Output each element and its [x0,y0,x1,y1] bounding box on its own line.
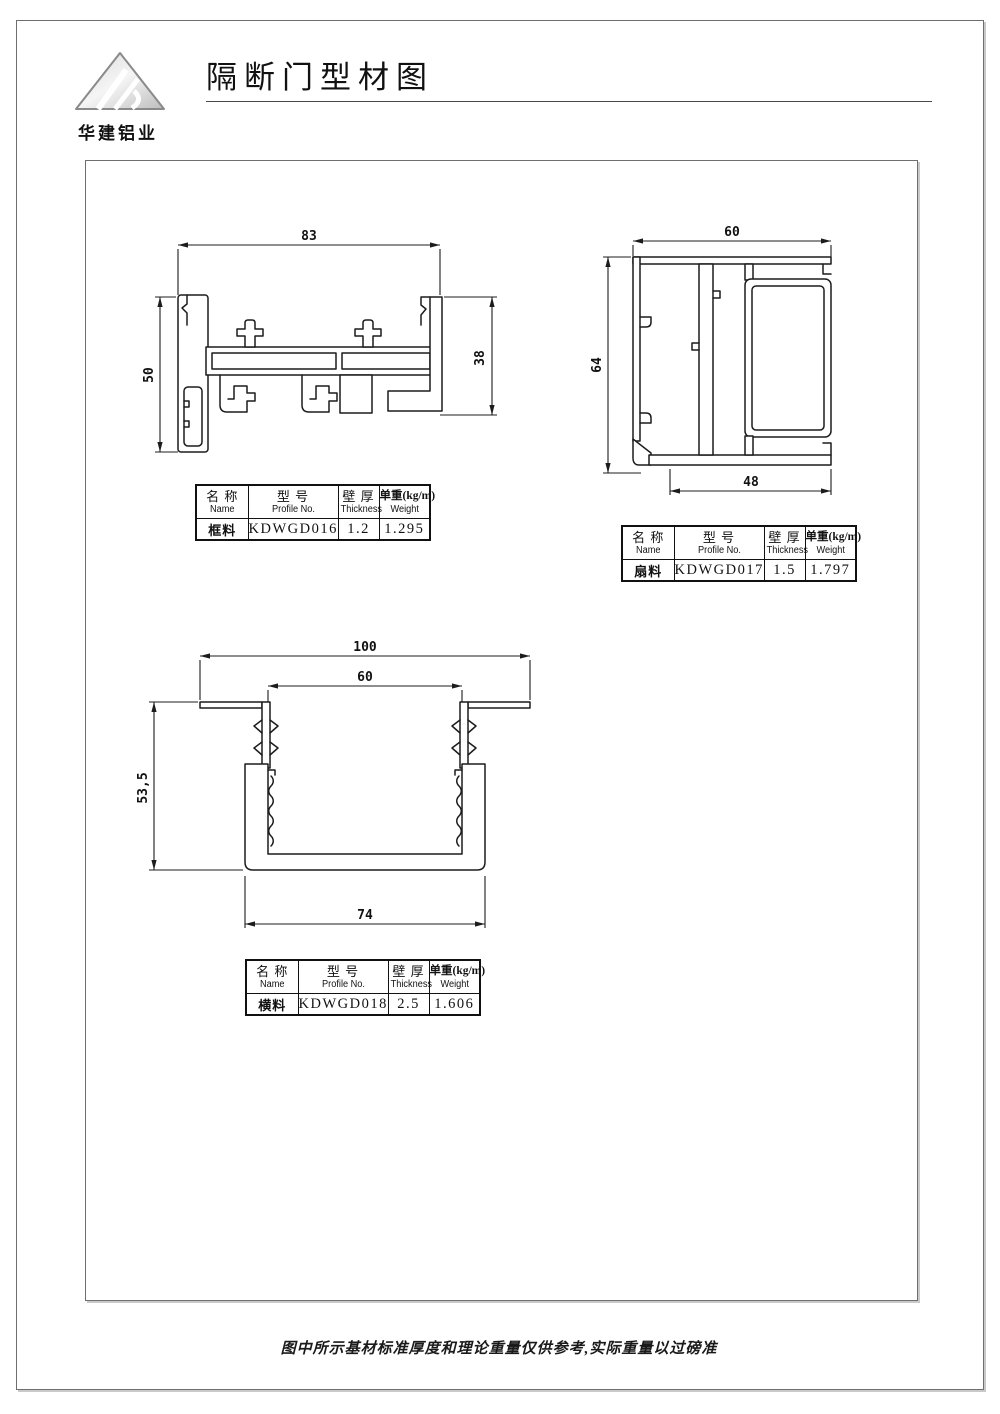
col-model: 型 号Profile No. [248,485,338,519]
dim-label: 100 [353,640,377,655]
col-model: 型 号Profile No. [674,526,764,560]
sash-profile-drawing: 60 64 48 [595,225,865,515]
dim-right-38: 38 [440,297,497,415]
dim-label: 83 [301,229,317,244]
company-logo: 华建铝业 [62,50,174,144]
dim-inner-60: 60 [268,670,462,704]
profile-thickness: 1.2 [338,519,379,541]
profile-weight: 1.295 [379,519,430,541]
profile-weight: 1.797 [805,560,856,582]
col-name: 名 称Name [246,960,298,994]
profile-no: KDWGD016 [248,519,338,541]
spec-table-frame: 名 称Name 型 号Profile No. 壁 厚Thickness 单重(k… [195,484,431,541]
dim-bottom-74: 74 [245,876,485,928]
dim-left-53-5: 53,5 [136,702,243,870]
col-thickness: 壁 厚Thickness [388,960,429,994]
table-row: 扇料 KDWGD017 1.5 1.797 [622,560,856,582]
dim-left-50: 50 [142,297,178,452]
table-row: 框料 KDWGD016 1.2 1.295 [196,519,430,541]
col-weight: 单重(kg/m)Weight [379,485,430,519]
profile-thickness: 1.5 [764,560,805,582]
footer-disclaimer: 图中所示基材标准厚度和理论重量仅供参考,实际重量以过磅准 [16,1337,982,1358]
spec-table-sash: 名 称Name 型 号Profile No. 壁 厚Thickness 单重(k… [621,525,857,582]
brand-name: 华建铝业 [62,119,174,144]
table-header-row: 名 称Name 型 号Profile No. 壁 厚Thickness 单重(k… [622,526,856,560]
dim-label: 74 [357,908,373,923]
dim-top-60: 60 [633,225,831,257]
profile-no: KDWGD018 [298,994,388,1016]
profile-weight: 1.606 [429,994,480,1016]
profile-name: 横料 [246,994,298,1016]
col-weight: 单重(kg/m)Weight [805,526,856,560]
logo-triangle-icon [68,50,168,112]
frame-profile-outline [178,295,442,452]
sash-profile-outline [633,257,831,465]
transom-profile-drawing: 100 60 53,5 74 [140,640,540,940]
transom-profile-outline [200,702,530,870]
col-thickness: 壁 厚Thickness [338,485,379,519]
spec-table-transom: 名 称Name 型 号Profile No. 壁 厚Thickness 单重(k… [245,959,481,1016]
dim-bottom-48: 48 [670,469,831,495]
profile-no: KDWGD017 [674,560,764,582]
frame-profile-drawing: 83 50 38 [140,225,510,475]
dim-label: 50 [142,367,157,383]
col-weight: 单重(kg/m)Weight [429,960,480,994]
dim-label: 60 [357,670,373,685]
dim-top-83: 83 [178,229,440,295]
dim-label: 53,5 [136,772,151,803]
col-thickness: 壁 厚Thickness [764,526,805,560]
table-header-row: 名 称Name 型 号Profile No. 壁 厚Thickness 单重(k… [196,485,430,519]
table-header-row: 名 称Name 型 号Profile No. 壁 厚Thickness 单重(k… [246,960,480,994]
col-name: 名 称Name [196,485,248,519]
dim-label: 60 [724,225,740,240]
profile-thickness: 2.5 [388,994,429,1016]
drawing-sheet-page: 华建铝业 隔断门型材图 83 50 38 [0,0,1000,1414]
dim-label: 38 [473,350,488,366]
col-model: 型 号Profile No. [298,960,388,994]
title-underline [206,101,932,102]
table-row: 横料 KDWGD018 2.5 1.606 [246,994,480,1016]
page-title: 隔断门型材图 [206,52,434,97]
col-name: 名 称Name [622,526,674,560]
profile-name: 扇料 [622,560,674,582]
dim-label: 48 [743,475,759,490]
dim-label: 64 [590,357,605,373]
profile-name: 框料 [196,519,248,541]
